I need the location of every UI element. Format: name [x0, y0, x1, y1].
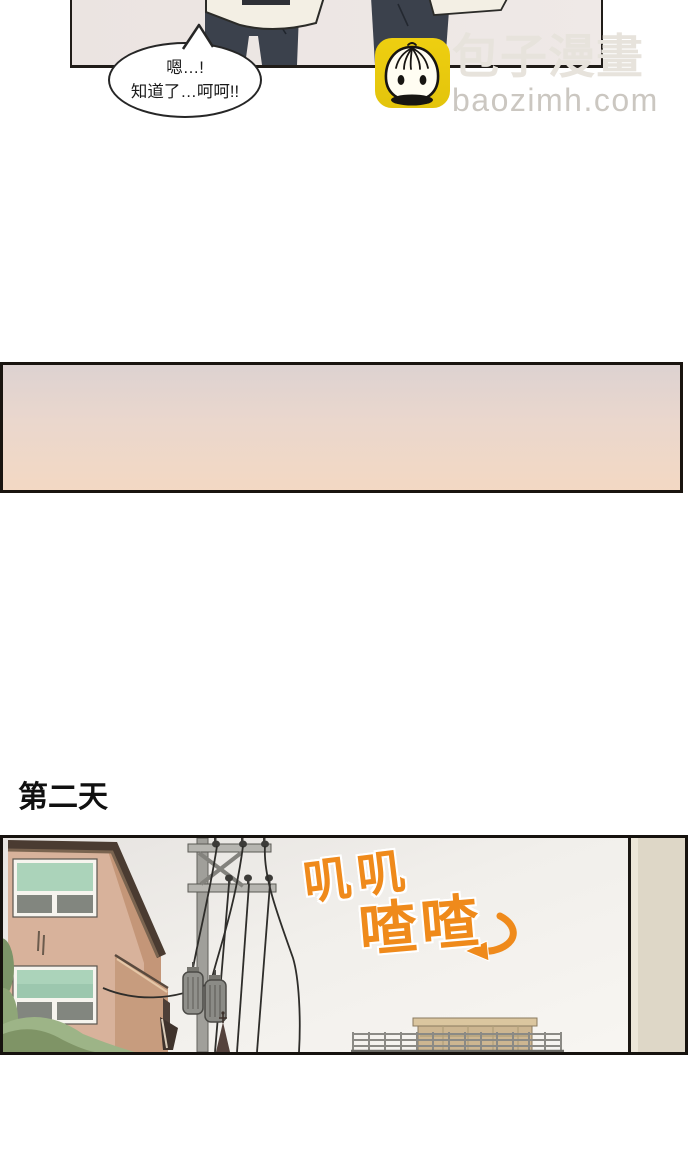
speech-bubble-tail [180, 23, 216, 50]
speech-line-1: 嗯…! [166, 56, 204, 80]
window-upper [13, 859, 97, 917]
watermark-url-text: baozimh.com [452, 84, 659, 116]
panel-street-scene: 叽叽 喳喳 [0, 835, 688, 1055]
panel-gradient-sky [0, 362, 683, 493]
baozi-bun-icon [375, 38, 450, 108]
comic-page: 嗯…! 知道了…呵呵!! 包子漫畫 baozimh.com 第二天 [0, 0, 690, 1157]
window-lower [13, 966, 97, 1024]
right-figure-shirt [429, 0, 508, 15]
right-building-edge [628, 838, 631, 1052]
left-figure-hem [242, 0, 290, 5]
watermark-brand-text: 包子漫畫 [452, 33, 644, 80]
left-building [3, 840, 178, 1052]
scene-caption: 第二天 [18, 772, 108, 816]
speech-line-2: 知道了…呵呵!! [131, 80, 239, 104]
right-building-wall [631, 838, 685, 1052]
speech-bubble: 嗯…! 知道了…呵呵!! [108, 42, 262, 118]
sfx-chirp-bottom: 喳喳 [357, 893, 486, 962]
